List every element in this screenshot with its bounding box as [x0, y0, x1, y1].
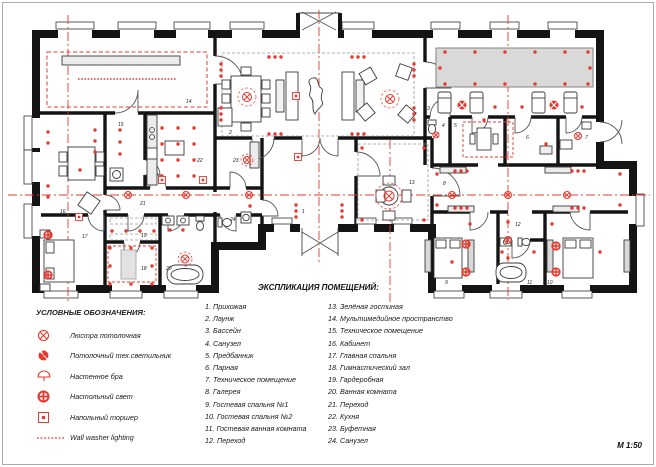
room-name: Гостевая спальня №2 — [217, 412, 292, 421]
room-name: Лаунж — [213, 314, 234, 323]
explication-item: 13Зелёная гостиная — [328, 301, 478, 313]
room-label: 4 — [442, 123, 445, 129]
lounge-side-table — [218, 108, 232, 126]
room-name: Буфетная — [340, 424, 376, 433]
room-label: 11 — [527, 280, 532, 286]
explication-item: 21Переход — [328, 399, 478, 411]
room-label: 5 — [454, 123, 457, 129]
pool — [436, 48, 593, 87]
legend-item: Wall washer lighting — [36, 428, 206, 449]
explication-item: 3Бассейн — [205, 325, 328, 337]
explication-title: ЭКСПЛИКАЦИЯ ПОМЕЩЕНИЙ: — [258, 283, 505, 292]
room-number: 5 — [205, 351, 213, 360]
explication-item: 6Парная — [205, 362, 328, 374]
room-label: 24 — [229, 217, 236, 223]
room-label: 16 — [60, 209, 66, 215]
room-name: Гостевая ванная комната — [216, 424, 306, 433]
room-label: 17 — [82, 234, 88, 240]
room-number: 11 — [205, 424, 216, 433]
room-name: Мультимедийное пространство — [340, 314, 453, 323]
explication-item: 5Предбанник — [205, 350, 328, 362]
room-label: 12 — [515, 222, 521, 228]
floor-plan: 1 2 3 4 5 6 7 8 9 10 11 12 13 14 15 16 1… — [0, 0, 656, 302]
explication-item: 8Галерея — [205, 386, 328, 398]
media-screen — [62, 56, 180, 65]
floor-plan-drawing: 1 2 3 4 5 6 7 8 9 10 11 12 13 14 15 16 1… — [0, 0, 656, 302]
room-name: Санузел — [213, 339, 241, 348]
room-label: 19 — [141, 233, 147, 239]
scale-label: М 1:50 — [617, 441, 642, 450]
room-name: Санузел — [340, 436, 368, 445]
explication-item: 19Гардеробная — [328, 374, 478, 386]
wall-sconce-icon — [36, 369, 70, 383]
explication-item: 7Техническое помещение — [205, 374, 328, 386]
room-name: Кабинет — [340, 339, 370, 348]
legend-item: Настольный свет — [36, 387, 206, 408]
ceiling-chandelier-icon — [36, 328, 70, 343]
explication-item: 2Лаунж — [205, 313, 328, 325]
room-label: 10 — [547, 280, 553, 286]
room-label: 3 — [427, 106, 430, 112]
room-label: 21 — [139, 201, 146, 207]
wall-washer-icon — [36, 434, 70, 442]
explication-item: 15Техническое помещение — [328, 325, 478, 337]
room-number: 24 — [328, 436, 340, 445]
legend-title: УСЛОВНЫЕ ОБОЗНАЧЕНИЯ: — [36, 308, 206, 317]
explication-item: 1Прихожая — [205, 301, 328, 313]
room-name: Техническое помещение — [340, 326, 423, 335]
room-label: 7 — [585, 135, 588, 141]
room-name: Гимнастический зал — [340, 363, 410, 372]
room-number: 13 — [328, 302, 340, 311]
explication-item: 12Переход — [205, 435, 328, 447]
room-name: Техническое помещение — [213, 375, 296, 384]
room-name: Гардеробная — [340, 375, 383, 384]
explication-column-2: 13Зелёная гостиная14Мультимедийное прост… — [328, 301, 478, 447]
room-name: Переход — [340, 400, 368, 409]
room-label: 22 — [196, 158, 203, 164]
room-number: 16 — [328, 339, 340, 348]
room-number: 20 — [328, 387, 340, 396]
room-number: 21 — [328, 400, 340, 409]
explication-item: 10Гостевая спальня №2 — [205, 411, 328, 423]
pantry-shelf — [250, 142, 259, 168]
room-name: Гостевая спальня №1 — [213, 400, 288, 409]
room-name: Зелёная гостиная — [340, 302, 403, 311]
room-label: 6 — [526, 135, 529, 141]
room-number: 8 — [205, 387, 213, 396]
explication-item: 11Гостевая ванная комната — [205, 423, 328, 435]
explication-item: 23Буфетная — [328, 423, 478, 435]
explication-item: 24Санузел — [328, 435, 478, 447]
room-number: 19 — [328, 375, 340, 384]
room-label: 20 — [165, 266, 172, 272]
tech-room-washer — [110, 168, 123, 181]
legend-item: Напольный торшер — [36, 407, 206, 428]
room-name: Предбанник — [213, 351, 253, 360]
room-label: 15 — [118, 122, 124, 128]
room-number: 4 — [205, 339, 213, 348]
room-name: Главная спальня — [340, 351, 396, 360]
room-label: 1 — [302, 209, 305, 215]
room-label: 14 — [186, 99, 192, 105]
room-label: 13 — [409, 180, 415, 186]
table-light-icon — [36, 389, 70, 404]
explication-column-1: 1Прихожая2Лаунж3Бассейн4Санузел5Предбанн… — [205, 301, 328, 447]
explication-item: 14Мультимедийное пространство — [328, 313, 478, 325]
room-number: 15 — [328, 326, 340, 335]
room-label: 8 — [443, 181, 446, 187]
room-number: 17 — [328, 351, 340, 360]
explication-item: 9Гостевая спальня №1 — [205, 399, 328, 411]
room-number: 7 — [205, 375, 213, 384]
room-number: 1 — [205, 302, 213, 311]
legend: УСЛОВНЫЕ ОБОЗНАЧЕНИЯ: Люстра потолочная … — [36, 308, 206, 448]
explication-item: 22Кухня — [328, 411, 478, 423]
room-label: 23 — [232, 158, 239, 164]
room-name: Кухня — [340, 412, 359, 421]
room-name: Бассейн — [213, 326, 241, 335]
room-number: 10 — [205, 412, 217, 421]
room-name: Галерея — [213, 387, 240, 396]
legend-item: Люстра потолочная — [36, 325, 206, 346]
room-name: Ванная комната — [340, 387, 397, 396]
room-number: 22 — [328, 412, 340, 421]
gym-mat — [121, 250, 136, 279]
floor-plan-sheet: 1 2 3 4 5 6 7 8 9 10 11 12 13 14 15 16 1… — [0, 0, 656, 467]
explication-item: 16Кабинет — [328, 338, 478, 350]
room-label: 18 — [141, 266, 147, 272]
room-name: Парная — [213, 363, 238, 372]
ceiling-tech-light-icon — [36, 348, 70, 363]
floor-lamp-icon — [36, 410, 70, 425]
room-number: 6 — [205, 363, 213, 372]
room-number: 9 — [205, 400, 213, 409]
legend-item: Потолочный тех.светильник — [36, 346, 206, 367]
room-label: 2 — [228, 130, 232, 136]
room-name: Прихожая — [213, 302, 246, 311]
explication-item: 18Гимнастический зал — [328, 362, 478, 374]
room-explication: ЭКСПЛИКАЦИЯ ПОМЕЩЕНИЙ: 1Прихожая2Лаунж3Б… — [205, 283, 505, 447]
room-number: 14 — [328, 314, 340, 323]
room-number: 18 — [328, 363, 340, 372]
room-name: Переход — [217, 436, 245, 445]
room-number: 3 — [205, 326, 213, 335]
explication-item: 4Санузел — [205, 338, 328, 350]
room-number: 23 — [328, 424, 340, 433]
room-number: 2 — [205, 314, 213, 323]
explication-item: 17Главная спальня — [328, 350, 478, 362]
room-number: 12 — [205, 436, 217, 445]
legend-item: Настенное бра — [36, 366, 206, 387]
explication-item: 20Ванная комната — [328, 386, 478, 398]
